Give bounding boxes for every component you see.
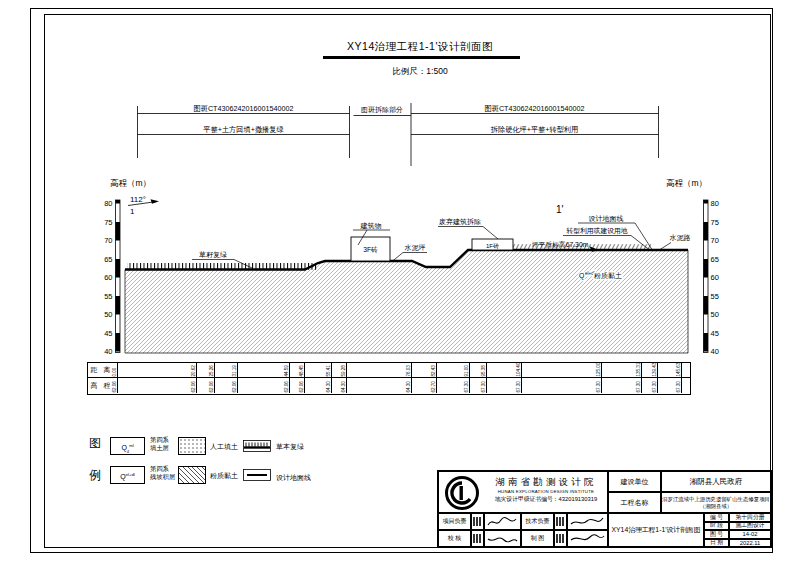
elevation-value: 62.06 xyxy=(193,381,198,393)
legend-label-silty-clay: 粉质黏土 xyxy=(210,471,238,481)
role-tech-lead: 技术负责 xyxy=(521,513,554,530)
level-elevation-label: 坪平后标高67.30m xyxy=(531,241,589,249)
legend-swatch-design-line xyxy=(243,469,271,481)
printed-name-cell xyxy=(471,513,484,530)
institute-name-en: HUNAN EXPLORATION DESIGN INSTITUTE xyxy=(485,489,607,494)
demolish-zone-label: 图斑拆除部分 xyxy=(361,106,403,114)
elevation-tick-label: 50 xyxy=(711,310,719,319)
section-direction-marker: 112° 1 xyxy=(128,195,159,216)
owner-label: 建设单位 xyxy=(608,471,661,492)
field-value-volume: 第十四分册 xyxy=(729,513,771,522)
elevation-tick-label: 50 xyxy=(104,310,112,319)
signature-cell xyxy=(484,513,521,530)
printed-name-scribble xyxy=(555,515,566,528)
field-label-stage: 阶 段 xyxy=(704,522,729,531)
signature-cell xyxy=(484,530,521,547)
elevation-value: 62.06 xyxy=(301,381,306,393)
soil-name: 粉质黏土 xyxy=(594,272,622,280)
elevation-value: 62.06 xyxy=(234,381,239,393)
elevation-tick-label: 60 xyxy=(711,273,719,282)
signature-scribble xyxy=(569,532,606,546)
section-start-label: 1 xyxy=(130,207,135,216)
legend-label-design-line: 设计地面线 xyxy=(276,473,311,483)
treatment-right: 拆除硬化坪+平整+转型利用 xyxy=(490,125,578,134)
printed-name-cell xyxy=(471,530,484,547)
legend-swatch-artificial-fill xyxy=(178,437,206,455)
institute-cell: 湖南省勘测设计院 HUNAN EXPLORATION DESIGN INSTIT… xyxy=(438,471,608,513)
cement-road-label: 水泥路 xyxy=(670,234,691,242)
elevation-scale-bar-left xyxy=(116,200,121,353)
plot-number-right: 图斑CT4306242016001540002 xyxy=(485,104,585,113)
demolish-label: 废弃建筑拆除 xyxy=(439,218,481,226)
elevation-axis-title-left: 高程（m） xyxy=(110,178,151,188)
elevation-value: 67.30 xyxy=(518,381,523,393)
building-label: 建筑物 xyxy=(360,222,382,230)
elevation-tick-label: 70 xyxy=(104,236,112,245)
legend-title-char-1: 图 xyxy=(89,435,103,452)
legend-label-residual-layer: 第四系 残坡积层 xyxy=(150,465,175,481)
signature-cell xyxy=(567,513,608,530)
project-name: 汨罗江流域中上游历史遗留矿山生态修复项目 （湘阴县域） xyxy=(661,492,771,513)
cement-pad-label: 水泥坪 xyxy=(405,244,426,252)
distance-value: 76.03 xyxy=(408,365,413,377)
printed-name-scribble xyxy=(472,532,483,545)
legend-swatch-qeldl: Qel+dl xyxy=(110,466,145,484)
distance-value: 104.40 xyxy=(518,363,523,377)
distance-value: 91.00 xyxy=(466,365,471,377)
elevation-value: 64.30 xyxy=(343,381,348,393)
elevation-tick-label: 55 xyxy=(711,292,719,301)
distance-value: 48.45 xyxy=(301,365,306,377)
elevation-value: 67.30 xyxy=(466,381,471,393)
distance-value: 135.31 xyxy=(638,363,643,377)
distance-value: 59.28 xyxy=(343,365,348,377)
plot-number-left: 图斑CT4306242016001540002 xyxy=(194,104,294,113)
title-block: 湖南省勘测设计院 HUNAN EXPLORATION DESIGN INSTIT… xyxy=(437,470,772,548)
elevation-axis-title-right: 高程（m） xyxy=(666,178,707,188)
reuse-label: 转型利用或建设用地 xyxy=(566,227,627,235)
printed-name-cell xyxy=(554,513,567,530)
distance-value: 55.41 xyxy=(328,365,333,377)
legend-swatch-q4ml: Q4ml xyxy=(110,437,145,455)
field-value-date: 2022.11 xyxy=(729,539,771,548)
field-label-drawing-no: 图 号 xyxy=(704,530,729,539)
elevation-value: 67.30 xyxy=(483,381,488,393)
drawing-sheet: XY14治理工程1-1'设计剖面图 比例尺：1:500 xyxy=(0,0,794,561)
institute-name-cn: 湖南省勘测设计院 xyxy=(485,476,607,489)
elevation-value: 67.30 xyxy=(654,381,659,393)
elevation-tick-label: 65 xyxy=(104,255,112,264)
elevation-scale-bar-right xyxy=(704,200,709,353)
building-3f-label: 3F砖 xyxy=(363,246,378,253)
elevation-value: 67.30 xyxy=(678,381,683,393)
printed-name-cell xyxy=(554,530,567,547)
grass-label: 草籽复绿 xyxy=(199,251,227,259)
signature-scribble xyxy=(569,515,606,529)
elevation-value: 62.70 xyxy=(433,381,438,393)
elevation-value: 62.06 xyxy=(211,381,216,393)
field-value-drawing-no: 14-02 xyxy=(729,530,771,539)
distance-value: 82.43 xyxy=(433,365,438,377)
treatment-left: 平整+土方回填+撒播复绿 xyxy=(203,125,283,134)
legend-title-char-2: 例 xyxy=(89,467,103,484)
distance-value: 44.59 xyxy=(286,365,291,377)
elevation-tick-label: 40 xyxy=(104,347,112,356)
printed-name-scribble xyxy=(555,532,566,545)
legend-swatch-grass xyxy=(243,440,271,452)
signature-scribble xyxy=(486,515,519,529)
distance-value: 0.00 xyxy=(113,368,118,377)
section-azimuth: 112° xyxy=(130,195,146,204)
elevation-tick-label: 80 xyxy=(711,199,719,208)
elevation-ticks-left: 807570656055504540 xyxy=(104,199,112,356)
distance-value: 31.19 xyxy=(234,365,239,377)
legend-label-grass: 草本复绿 xyxy=(276,442,304,452)
legend-label-fill-layer: 第四系 填土层 xyxy=(150,436,169,452)
elevation-tick-label: 80 xyxy=(104,199,112,208)
institute-cert-number: 地灾设计甲级证书编号：432019130319 xyxy=(485,495,607,504)
grass-tufts xyxy=(127,263,318,270)
role-drafter: 制 图 xyxy=(521,530,554,547)
owner-name: 湘阴县人民政府 xyxy=(661,471,771,492)
elevation-value: 67.30 xyxy=(598,381,603,393)
elevation-tick-label: 60 xyxy=(104,273,112,282)
legend-label-artificial-fill: 人工填土 xyxy=(210,442,238,452)
direction-arrow-icon xyxy=(151,199,160,204)
elevation-value: 62.06 xyxy=(286,381,291,393)
distance-value: 125.00 xyxy=(598,363,603,377)
elevation-tick-label: 55 xyxy=(104,292,112,301)
section-end-label: 1' xyxy=(556,204,564,215)
project-label: 工程名称 xyxy=(608,492,661,513)
field-label-volume: 编 号 xyxy=(704,513,729,522)
elevation-tick-label: 45 xyxy=(104,329,112,338)
printed-name-scribble xyxy=(472,515,483,528)
elevation-tick-label: 70 xyxy=(711,236,719,245)
distance-value: 95.38 xyxy=(483,365,488,377)
table-row-separator xyxy=(87,377,690,378)
distance-value: 25.26 xyxy=(211,365,216,377)
field-value-stage: 施工图设计 xyxy=(729,522,771,531)
elevation-value: 62.06 xyxy=(113,381,118,393)
distance-value: 139.43 xyxy=(654,363,659,377)
elevation-tick-label: 40 xyxy=(711,347,719,356)
signature-cell xyxy=(567,530,608,547)
distance-value: 145.63 xyxy=(678,363,683,377)
role-checker: 校 核 xyxy=(438,530,471,547)
field-label-date: 日 期 xyxy=(704,539,729,548)
design-line-label: 设计地面线 xyxy=(589,215,624,223)
signature-scribble xyxy=(486,532,519,546)
elevation-value: 67.30 xyxy=(638,381,643,393)
drawing-name: XY14治理工程1-1'设计剖面图 xyxy=(608,513,704,547)
distance-value: 20.62 xyxy=(193,365,198,377)
elevation-tick-label: 45 xyxy=(711,329,719,338)
elevation-tick-label: 65 xyxy=(711,255,719,264)
legend-swatch-silty-clay xyxy=(178,466,206,484)
elevation-ticks-right: 807570656055504540 xyxy=(711,199,719,356)
elevation-value: 64.30 xyxy=(328,381,333,393)
institute-logo xyxy=(443,475,481,511)
building-1f-label: 1F砖 xyxy=(486,243,499,249)
elevation-tick-label: 75 xyxy=(104,218,112,227)
role-project-lead: 项目负责 xyxy=(438,513,471,530)
elevation-tick-label: 75 xyxy=(711,218,719,227)
elevation-value: 64.30 xyxy=(408,381,413,393)
